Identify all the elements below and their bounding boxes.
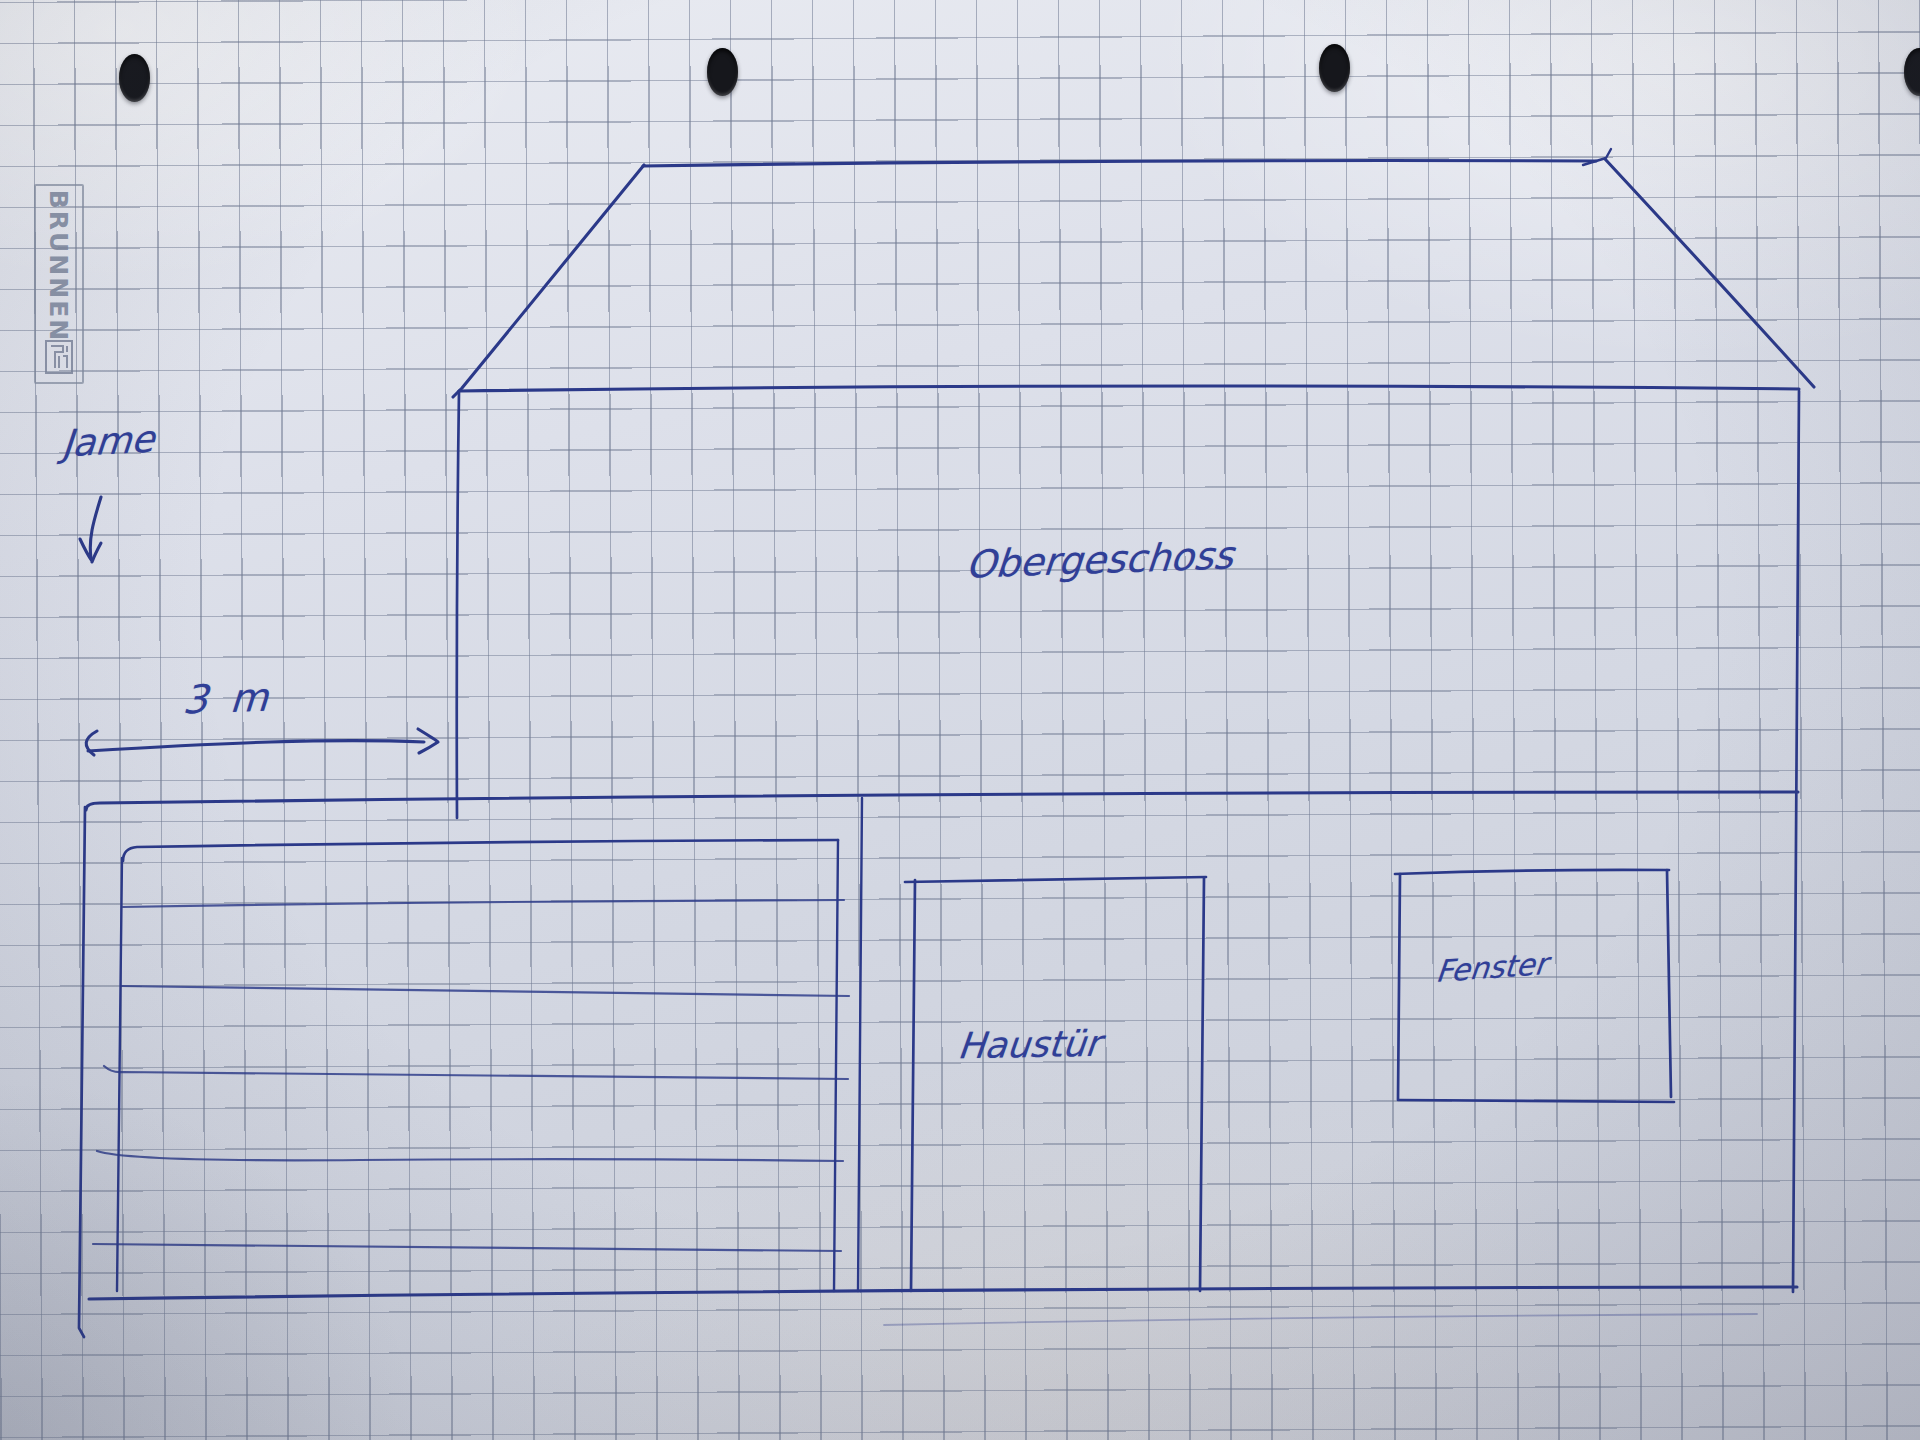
photo-vignette <box>0 0 1920 1440</box>
photo-of-sketch: BRUNNEN <box>0 0 1920 1440</box>
